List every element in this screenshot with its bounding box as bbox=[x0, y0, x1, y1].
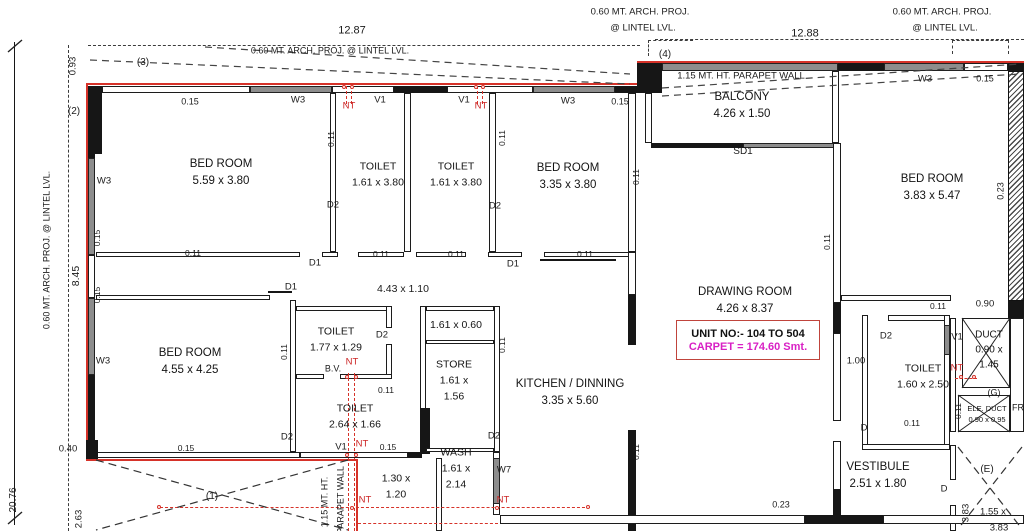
room-label: KITCHEN / DINNING3.35 x 5.60 bbox=[516, 376, 625, 411]
dim-label: 12.87 bbox=[338, 26, 366, 37]
dim-label: 0.11 bbox=[378, 386, 394, 395]
dim-label: D1 bbox=[507, 259, 519, 269]
dim-label: 0.11 bbox=[448, 250, 464, 259]
dim-label: 0.60 MT. ARCH. PROJ. bbox=[893, 7, 992, 17]
dim-label: W7 bbox=[497, 465, 511, 475]
dim-label: 0.23 bbox=[997, 182, 1006, 200]
dim-label: D2 bbox=[489, 201, 501, 211]
dim-label: (4) bbox=[659, 50, 671, 60]
dim-label: B.V. bbox=[325, 365, 341, 374]
dim-label: 0.15 bbox=[178, 444, 195, 453]
room-label: TOILET1.61 x 3.80 bbox=[352, 159, 404, 191]
dim-label: 2.63 bbox=[74, 510, 84, 529]
dim-label: V1 bbox=[335, 442, 347, 452]
dim-label: 1.15 MT. HT. bbox=[321, 477, 330, 528]
dim-label: NT bbox=[475, 101, 488, 111]
dim-label: @ LINTEL LVL. bbox=[912, 23, 978, 33]
dim-label: V1 bbox=[458, 95, 470, 105]
room-label: 1.30 x1.20 bbox=[382, 471, 411, 503]
room-label: BED ROOM3.35 x 3.80 bbox=[537, 160, 600, 195]
room-label: ELE. DUCT0.90 x 0.95 bbox=[967, 403, 1006, 426]
dim-label: 0.15 bbox=[93, 230, 102, 247]
dim-label: W3 bbox=[96, 356, 110, 366]
room-label: WASH1.61 x2.14 bbox=[440, 445, 471, 492]
room-label: BED ROOM5.59 x 3.80 bbox=[190, 156, 253, 191]
dim-label: 0.11 bbox=[823, 234, 832, 250]
room-label: BED ROOM3.83 x 5.47 bbox=[901, 171, 964, 206]
dim-label: 3.83 bbox=[961, 504, 971, 523]
room-label: 1.61 x 0.60 bbox=[430, 318, 482, 334]
dim-label: 0.11 bbox=[954, 403, 963, 419]
dim-label: D bbox=[941, 484, 948, 494]
dim-label: 0.11 bbox=[498, 337, 507, 353]
room-label: VESTIBULE2.51 x 1.80 bbox=[846, 459, 909, 494]
room-label: BED ROOM4.55 x 4.25 bbox=[159, 345, 222, 380]
dim-label: 0.11 bbox=[185, 249, 201, 258]
unit-info-box: UNIT NO:- 104 TO 504 CARPET = 174.60 Smt… bbox=[676, 320, 820, 360]
dim-label: 0.60 MT. ARCH. PROJ. @ LINTEL LVL. bbox=[251, 47, 409, 56]
dim-label: D2 bbox=[327, 200, 339, 210]
dim-label: 8.45 bbox=[71, 266, 82, 286]
dim-label: W3 bbox=[291, 95, 305, 105]
room-label: TOILET1.60 x 2.50 bbox=[897, 361, 949, 393]
dim-label: D1 bbox=[285, 282, 297, 292]
dim-label: 0.11 bbox=[632, 444, 641, 460]
dim-label: 0.15 bbox=[93, 287, 102, 304]
dim-label: 0.11 bbox=[930, 302, 946, 311]
dim-label: 0.93 bbox=[68, 57, 78, 76]
dim-label: 0.15 bbox=[611, 98, 629, 107]
dim-label: D bbox=[861, 423, 868, 433]
dim-label: 4.43 x 1.10 bbox=[377, 284, 429, 295]
dim-label: 0.11 bbox=[632, 169, 641, 185]
dim-label: 0.11 bbox=[577, 250, 593, 259]
dim-label: V1 bbox=[374, 95, 386, 105]
dim-label: 0.15 bbox=[181, 98, 199, 107]
dim-label: 0.15 bbox=[976, 75, 994, 84]
dim-label: 0.11 bbox=[904, 419, 920, 428]
dim-label: V1 bbox=[951, 332, 963, 342]
dim-label: PARAPET WALL bbox=[337, 466, 346, 531]
room-label: STORE1.61 x1.56 bbox=[436, 357, 472, 404]
dim-label: 1.55 x bbox=[980, 507, 1006, 517]
dim-label: 20.76 bbox=[9, 487, 19, 512]
dim-label: D2 bbox=[880, 331, 892, 341]
dim-label: NT bbox=[951, 363, 964, 373]
dim-label: D2 bbox=[376, 330, 388, 340]
dim-label: @ LINTEL LVL. bbox=[610, 23, 676, 33]
dim-label: W3 bbox=[97, 176, 111, 186]
dim-label: FR bbox=[1012, 404, 1024, 413]
dim-label: (1) bbox=[206, 492, 218, 502]
dim-label: (2) bbox=[68, 107, 80, 117]
dim-label: 0.11 bbox=[498, 130, 507, 146]
dim-label: 0.11 bbox=[373, 250, 389, 259]
floor-plan-canvas: 12.870.60 MT. ARCH. PROJ. @ LINTEL LVL.(… bbox=[0, 0, 1024, 531]
room-label: DUCT0.90 x1.45 bbox=[975, 328, 1003, 373]
room-label: TOILET2.64 x 1.66 bbox=[329, 401, 381, 433]
dim-label: 0.11 bbox=[327, 131, 336, 147]
dim-label: D1 bbox=[309, 258, 321, 268]
dim-label: 0.15 bbox=[380, 443, 397, 452]
dim-label: (3) bbox=[137, 58, 149, 68]
room-label: TOILET1.77 x 1.29 bbox=[310, 324, 362, 356]
dim-label: 0.60 MT. ARCH. PROJ. bbox=[591, 7, 690, 17]
dim-label: D2 bbox=[488, 431, 500, 441]
dim-label: W3 bbox=[918, 74, 932, 84]
dim-label: W3 bbox=[561, 96, 575, 106]
unit-number: UNIT NO:- 104 TO 504 bbox=[691, 328, 805, 340]
dim-label: 0.40 bbox=[59, 444, 78, 454]
dim-label: (E) bbox=[980, 465, 993, 475]
room-label: BALCONY4.26 x 1.50 bbox=[714, 89, 771, 124]
dim-label: 0.60 MT. ARCH. PROJ. @ LINTEL LVL. bbox=[43, 171, 52, 329]
dim-label: (G) bbox=[988, 389, 1001, 398]
dim-label: D2 bbox=[281, 432, 293, 442]
dim-label: NT bbox=[497, 495, 510, 505]
dim-label: NT bbox=[356, 439, 369, 449]
dim-label: NT bbox=[343, 101, 356, 111]
dim-label: 3.83 bbox=[990, 523, 1009, 531]
dim-label: NT bbox=[359, 495, 372, 505]
dim-label: 0.11 bbox=[280, 344, 289, 360]
dim-label: 1.15 MT. HT. PARAPET WALL bbox=[677, 71, 805, 81]
dim-label: 0.23 bbox=[772, 501, 790, 510]
dim-label: 0.90 bbox=[976, 299, 995, 309]
room-label: TOILET1.61 x 3.80 bbox=[430, 159, 482, 191]
dim-label: 12.88 bbox=[791, 29, 819, 40]
carpet-area: CARPET = 174.60 Smt. bbox=[689, 341, 807, 353]
dim-label: NT bbox=[346, 357, 359, 367]
dim-label: 1.00 bbox=[847, 356, 866, 366]
room-label: DRAWING ROOM4.26 x 8.37 bbox=[698, 284, 792, 319]
dim-label: SD1 bbox=[733, 147, 752, 157]
